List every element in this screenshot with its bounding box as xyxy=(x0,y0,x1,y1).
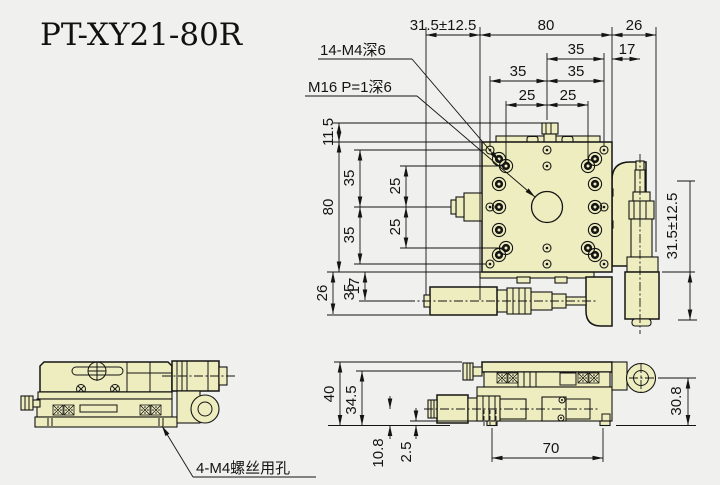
front-side-view: 40 34.5 10.8 2.5 70 30.8 xyxy=(321,362,696,468)
x-axis-micrometer xyxy=(606,154,659,334)
lock-ring xyxy=(629,201,654,219)
dim-10.8: 10.8 xyxy=(370,438,387,467)
plunger-right xyxy=(562,137,573,143)
thimble-cap xyxy=(632,319,651,326)
micrometer-bracket xyxy=(586,277,612,326)
dim-70: 70 xyxy=(543,440,560,457)
top-adjust-screw xyxy=(542,123,558,134)
page-title: PT-XY21-80R xyxy=(40,17,244,53)
foot-left xyxy=(487,421,497,426)
dim-40: 40 xyxy=(321,386,338,403)
y-axis-micrometer xyxy=(406,272,612,326)
dim-25-La: 25 xyxy=(387,178,404,195)
dim-30.8: 30.8 xyxy=(668,386,685,415)
plan-view: 31.5±12.5 80 26 35 17 35 35 25 25 11.5 3… xyxy=(305,17,697,334)
top-plate xyxy=(482,362,612,372)
dim-35-La: 35 xyxy=(341,170,358,187)
dim-35-r2: 35 xyxy=(568,41,585,58)
dim-25-r4a: 25 xyxy=(519,87,536,104)
dim-width-80: 80 xyxy=(538,17,555,34)
dim-35-r3a: 35 xyxy=(510,63,527,80)
dim-11.5: 11.5 xyxy=(320,118,337,146)
micrometer-thimble-side xyxy=(162,361,235,391)
pivot-bearing xyxy=(627,364,657,394)
dim-25-Lb: 25 xyxy=(387,219,404,236)
dim-17-left: 17 xyxy=(346,278,363,295)
side-clamp-screw xyxy=(451,193,482,221)
dim-80-left: 80 xyxy=(320,199,337,216)
bracket-side xyxy=(612,362,627,390)
dim-34.5: 34.5 xyxy=(343,385,360,414)
pivot-bracket-side xyxy=(177,391,219,423)
dim-17-r2: 17 xyxy=(619,41,636,58)
rail-layer xyxy=(484,372,610,387)
thimble xyxy=(625,272,659,319)
label-14-M4: 14-M4深6 xyxy=(320,42,386,59)
dim-26-top: 26 xyxy=(626,17,643,34)
label-M16: M16 P=1深6 xyxy=(308,79,392,96)
dim-travel-top: 31.5±12.5 xyxy=(410,17,477,34)
dim-26-left: 26 xyxy=(314,285,331,302)
cad-drawing: 31.5±12.5 80 26 35 17 35 35 25 25 11.5 3… xyxy=(0,0,720,485)
dim-2.5: 2.5 xyxy=(398,442,415,463)
foot-right xyxy=(600,421,610,426)
dim-35-r3b: 35 xyxy=(568,63,585,80)
plunger-left xyxy=(527,137,538,143)
left-side-view: 4-M4螺丝用孔 xyxy=(21,361,316,477)
drawing-sheet: 31.5±12.5 80 26 35 17 35 35 25 25 11.5 3… xyxy=(0,0,720,485)
dim-travel-right: 31.5±12.5 xyxy=(664,193,681,260)
base-plate xyxy=(35,417,177,427)
label-4-M4: 4-M4螺丝用孔 xyxy=(196,460,290,477)
dim-25-r4b: 25 xyxy=(560,87,577,104)
dim-35-Lb: 35 xyxy=(341,227,358,244)
clamp-knob-side xyxy=(463,363,482,380)
